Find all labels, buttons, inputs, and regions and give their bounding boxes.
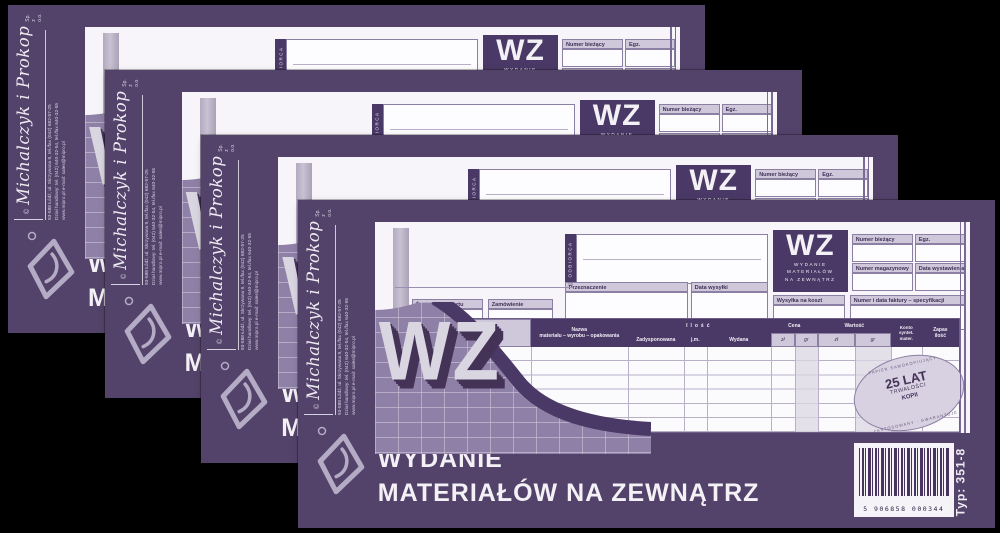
col-jm: j.m. — [684, 333, 707, 347]
address-line: www.mipro.pl e-mail: sales@mipro.pl — [352, 225, 359, 415]
field-label-numer-biezacy: Numer bieżący — [562, 39, 623, 49]
field-box-numer-biezacy — [659, 114, 720, 132]
field-label-numer-biezacy: Numer bieżący — [852, 234, 913, 244]
field-label-numer-faktury: Numer i data faktury – specyfikacji — [850, 295, 965, 305]
product-photo-canvas: © Michalczyk i Prokop Sp. z o.o. 93-588 … — [0, 0, 1000, 533]
field-box-numer-biezacy — [755, 179, 816, 197]
sidebar-rotated-brand: © Michalczyk i Prokop Sp. z o.o. 93-588 … — [14, 30, 78, 220]
field-box-egz — [818, 179, 868, 197]
company-name: Michalczyk i Prokop — [207, 156, 226, 335]
field-label-egz: Egz. — [722, 104, 772, 114]
sidebar-rotated-brand: © Michalczyk i Prokop Sp. z o.o. 93-588 … — [304, 225, 368, 415]
copyright-mark: © — [24, 209, 31, 214]
company-suffix: Sp. z o.o. — [315, 208, 333, 216]
copyright-mark: © — [217, 339, 224, 344]
company-suffix: Sp. z o.o. — [122, 78, 140, 86]
wz-header-box: WZ WYDANIE MATERIAŁÓW NA ZEWNĄTRZ — [773, 230, 848, 292]
company-suffix: Sp. z o.o. — [218, 143, 236, 151]
wz-code: WZ — [483, 36, 558, 66]
recipient-writing-line — [390, 129, 568, 130]
sidebar-rotated-brand: © Michalczyk i Prokop Sp. z o.o. 93-588 … — [207, 160, 271, 350]
col-zapas: Zapasilość — [922, 319, 959, 347]
field-box-egz — [722, 114, 772, 132]
recipient-field — [576, 234, 768, 284]
address-line: Dział handlowy: tel. (042) 640-32-54, te… — [345, 225, 352, 415]
field-label-data-wysylki: Data wysyłki — [691, 282, 768, 292]
col-konto: Kontosyntet.mater. — [891, 319, 922, 347]
ean-barcode: 5 906858 000344 — [854, 443, 954, 517]
field-label-numer-biezacy: Numer bieżący — [659, 104, 720, 114]
company-address: 93-588 Łódź, ul. Skrzywana 9, tel./fax (… — [335, 225, 359, 415]
field-label-egz: Egz. — [915, 234, 965, 244]
field-box-egz — [915, 244, 965, 262]
col-group-cena: Cena — [771, 319, 818, 333]
company-name: Michalczyk i Prokop — [304, 221, 323, 400]
barcode-bars — [859, 448, 949, 496]
field-label-numer-magazynowy: Numer magazynowy — [852, 263, 913, 273]
address-line: 93-588 Łódź, ul. Skrzywana 9, tel./fax (… — [145, 95, 152, 285]
field-label-egz: Egz. — [818, 169, 868, 179]
form-title-line2: MATERIAŁÓW NA ZEWNĄTRZ — [378, 479, 760, 508]
field-box-numer-biezacy — [562, 49, 623, 67]
form-type-number: Typ: 351-8 — [953, 435, 967, 530]
field-label-wysylka-na-koszt: Wysyłka na koszt — [773, 295, 845, 305]
recipient-label-box: ODBIORCA — [565, 234, 576, 284]
field-label-egz: Egz. — [625, 39, 675, 49]
sidebar-rotated-brand: © Michalczyk i Prokop Sp. z o.o. 93-588 … — [111, 95, 175, 285]
address-line: www.mipro.pl e-mail: sales@mipro.pl — [62, 30, 69, 220]
edge-rule — [960, 222, 962, 433]
col-wartosc-zl: zł — [818, 333, 855, 347]
field-label-numer-biezacy: Numer bieżący — [755, 169, 816, 179]
company-name: Michalczyk i Prokop — [14, 26, 33, 205]
address-line: Dział handlowy: tel. (042) 640-32-54, te… — [55, 30, 62, 220]
copyright-mark: © — [121, 274, 128, 279]
wz-code: WZ — [773, 231, 848, 261]
company-address: 93-588 Łódź, ul. Skrzywana 9, tel./fax (… — [45, 30, 69, 220]
recipient-writing-line — [583, 259, 761, 260]
barcode-digits: 5 906858 000344 — [854, 505, 954, 513]
address-line: www.mipro.pl e-mail: sales@mipro.pl — [159, 95, 166, 285]
col-wartosc-gr: gr — [855, 333, 891, 347]
edge-rule — [964, 222, 966, 433]
col-group-wartosc: Wartość — [818, 319, 891, 333]
wz-subtitle: MATERIAŁÓW — [773, 268, 848, 275]
wz-code: WZ — [580, 101, 655, 131]
col-wydana: Wydana — [707, 333, 771, 347]
wz-subtitle: NA ZEWNĄTRZ — [773, 276, 848, 283]
col-cena-zl: zł — [771, 333, 795, 347]
wz-code: WZ — [676, 166, 751, 196]
issuer-stamp-line: 19 — [395, 282, 573, 288]
field-box-egz — [625, 49, 675, 67]
company-name: Michalczyk i Prokop — [111, 91, 130, 270]
company-address: 93-588 Łódź, ul. Skrzywana 9, tel./fax (… — [238, 160, 262, 350]
recipient-block: ODBIORCA — [565, 234, 768, 284]
shaded-gr-column — [795, 347, 818, 432]
address-line: 93-588 Łódź, ul. Skrzywana 9, tel./fax (… — [48, 30, 55, 220]
wz-form: © Michalczyk i Prokop Sp. z o.o. 93-588 … — [298, 200, 995, 528]
address-line: www.mipro.pl e-mail: sales@mipro.pl — [255, 160, 262, 350]
company-address: 93-588 Łódź, ul. Skrzywana 9, tel./fax (… — [142, 95, 166, 285]
recipient-writing-line — [293, 64, 471, 65]
col-cena-gr: gr — [795, 333, 818, 347]
recipient-writing-line — [486, 194, 664, 195]
company-suffix: Sp. z o.o. — [25, 13, 43, 21]
field-box-data-wystawienia — [915, 273, 965, 291]
form-type-rotated-text: DRUKI SAMOKOPIUJĄCE Typ: 351-8 — [948, 435, 986, 530]
field-box-numer-biezacy — [852, 244, 913, 262]
wz-3d-lettering: WZ — [379, 312, 501, 391]
field-label-przeznaczenie: Przeznaczenie — [565, 282, 688, 292]
field-label-data-wystawienia: Data wystawienia — [915, 263, 965, 273]
field-box-numer-magazynowy — [852, 273, 913, 291]
copyright-mark: © — [314, 404, 321, 409]
address-line: 93-588 Łódź, ul. Skrzywana 9, tel./fax (… — [338, 225, 345, 415]
recipient-label: ODBIORCA — [565, 234, 576, 284]
address-line: Dział handlowy: tel. (042) 640-32-54, te… — [152, 95, 159, 285]
wz-subtitle: WYDANIE — [773, 261, 848, 268]
field-box-data-wysylki — [691, 292, 768, 320]
form-paper: ODBIORCA WZ WYDANIE MATERIAŁÓW NA ZEWNĄT… — [375, 222, 970, 433]
